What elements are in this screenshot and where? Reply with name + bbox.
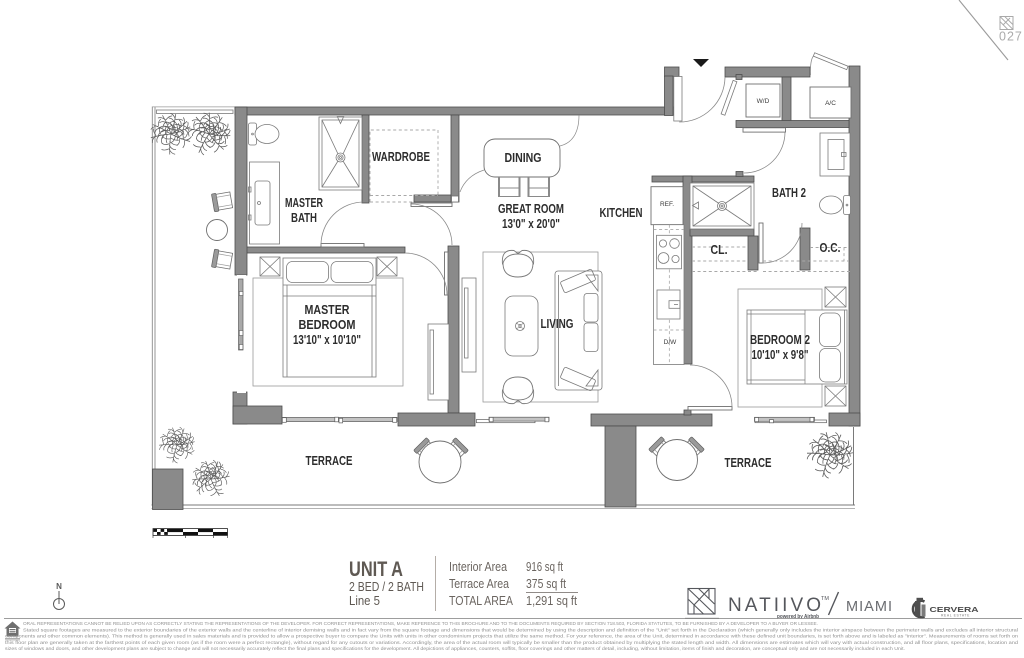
svg-text:Terrace Area: Terrace Area	[449, 577, 509, 591]
svg-text:TERRACE: TERRACE	[306, 454, 353, 468]
svg-text:components and other common el: components and other common elements). T…	[5, 634, 1018, 640]
svg-text:MASTER: MASTER	[285, 196, 323, 210]
svg-text:DINING: DINING	[505, 151, 542, 165]
svg-text:O.C.: O.C.	[820, 241, 841, 255]
svg-text:ORAL REPRESENTATIONS CANNOT BE: ORAL REPRESENTATIONS CANNOT BE RELIED UP…	[23, 621, 818, 627]
svg-text:375 sq ft: 375 sq ft	[526, 577, 566, 591]
svg-text:powered by Airbnb: powered by Airbnb	[777, 614, 819, 620]
svg-text:TOTAL AREA: TOTAL AREA	[449, 594, 514, 608]
svg-text:this floor plan are generally: this floor plan are generally taken at t…	[5, 640, 1018, 646]
svg-text:13'10" x 10'10": 13'10" x 10'10"	[293, 333, 361, 347]
svg-text:BATH: BATH	[291, 211, 317, 225]
svg-text:KITCHEN: KITCHEN	[600, 206, 643, 220]
svg-text:916 sq ft: 916 sq ft	[526, 560, 563, 574]
svg-text:D/W: D/W	[664, 339, 678, 346]
svg-text:MASTER: MASTER	[305, 303, 350, 317]
svg-text:Interior Area: Interior Area	[449, 560, 507, 574]
svg-text:027: 027	[999, 30, 1023, 44]
svg-text:BEDROOM: BEDROOM	[299, 318, 356, 332]
svg-text:TERRACE: TERRACE	[725, 456, 772, 470]
svg-text:BATH 2: BATH 2	[772, 186, 806, 200]
svg-text:REAL ESTATE: REAL ESTATE	[941, 614, 970, 618]
svg-text:BEDROOM 2: BEDROOM 2	[750, 333, 810, 347]
svg-text:TM: TM	[821, 596, 829, 602]
svg-text:Line 5: Line 5	[349, 593, 380, 608]
svg-text:N: N	[56, 582, 62, 591]
svg-text:REF.: REF.	[660, 201, 674, 208]
svg-text:W/D: W/D	[757, 98, 770, 105]
svg-text:2 BED / 2 BATH: 2 BED / 2 BATH	[349, 579, 424, 594]
svg-text:13'0" x 20'0": 13'0" x 20'0"	[502, 217, 560, 231]
svg-text:CL.: CL.	[711, 243, 728, 257]
svg-text:LIVING: LIVING	[541, 317, 574, 331]
svg-text:GREAT ROOM: GREAT ROOM	[498, 202, 564, 216]
svg-text:UNIT A: UNIT A	[349, 557, 403, 581]
svg-text:Stated square footages are mea: Stated square footages are measured to t…	[23, 627, 1018, 633]
svg-text:WARDROBE: WARDROBE	[372, 150, 430, 164]
svg-text:MIAMI: MIAMI	[846, 599, 892, 615]
svg-text:1,291 sq ft: 1,291 sq ft	[526, 594, 577, 608]
svg-text:sizes of windows and doors, an: sizes of windows and doors, and other de…	[5, 646, 905, 652]
svg-text:10'10" x 9'8": 10'10" x 9'8"	[752, 348, 809, 362]
svg-text:A/C: A/C	[825, 100, 836, 107]
